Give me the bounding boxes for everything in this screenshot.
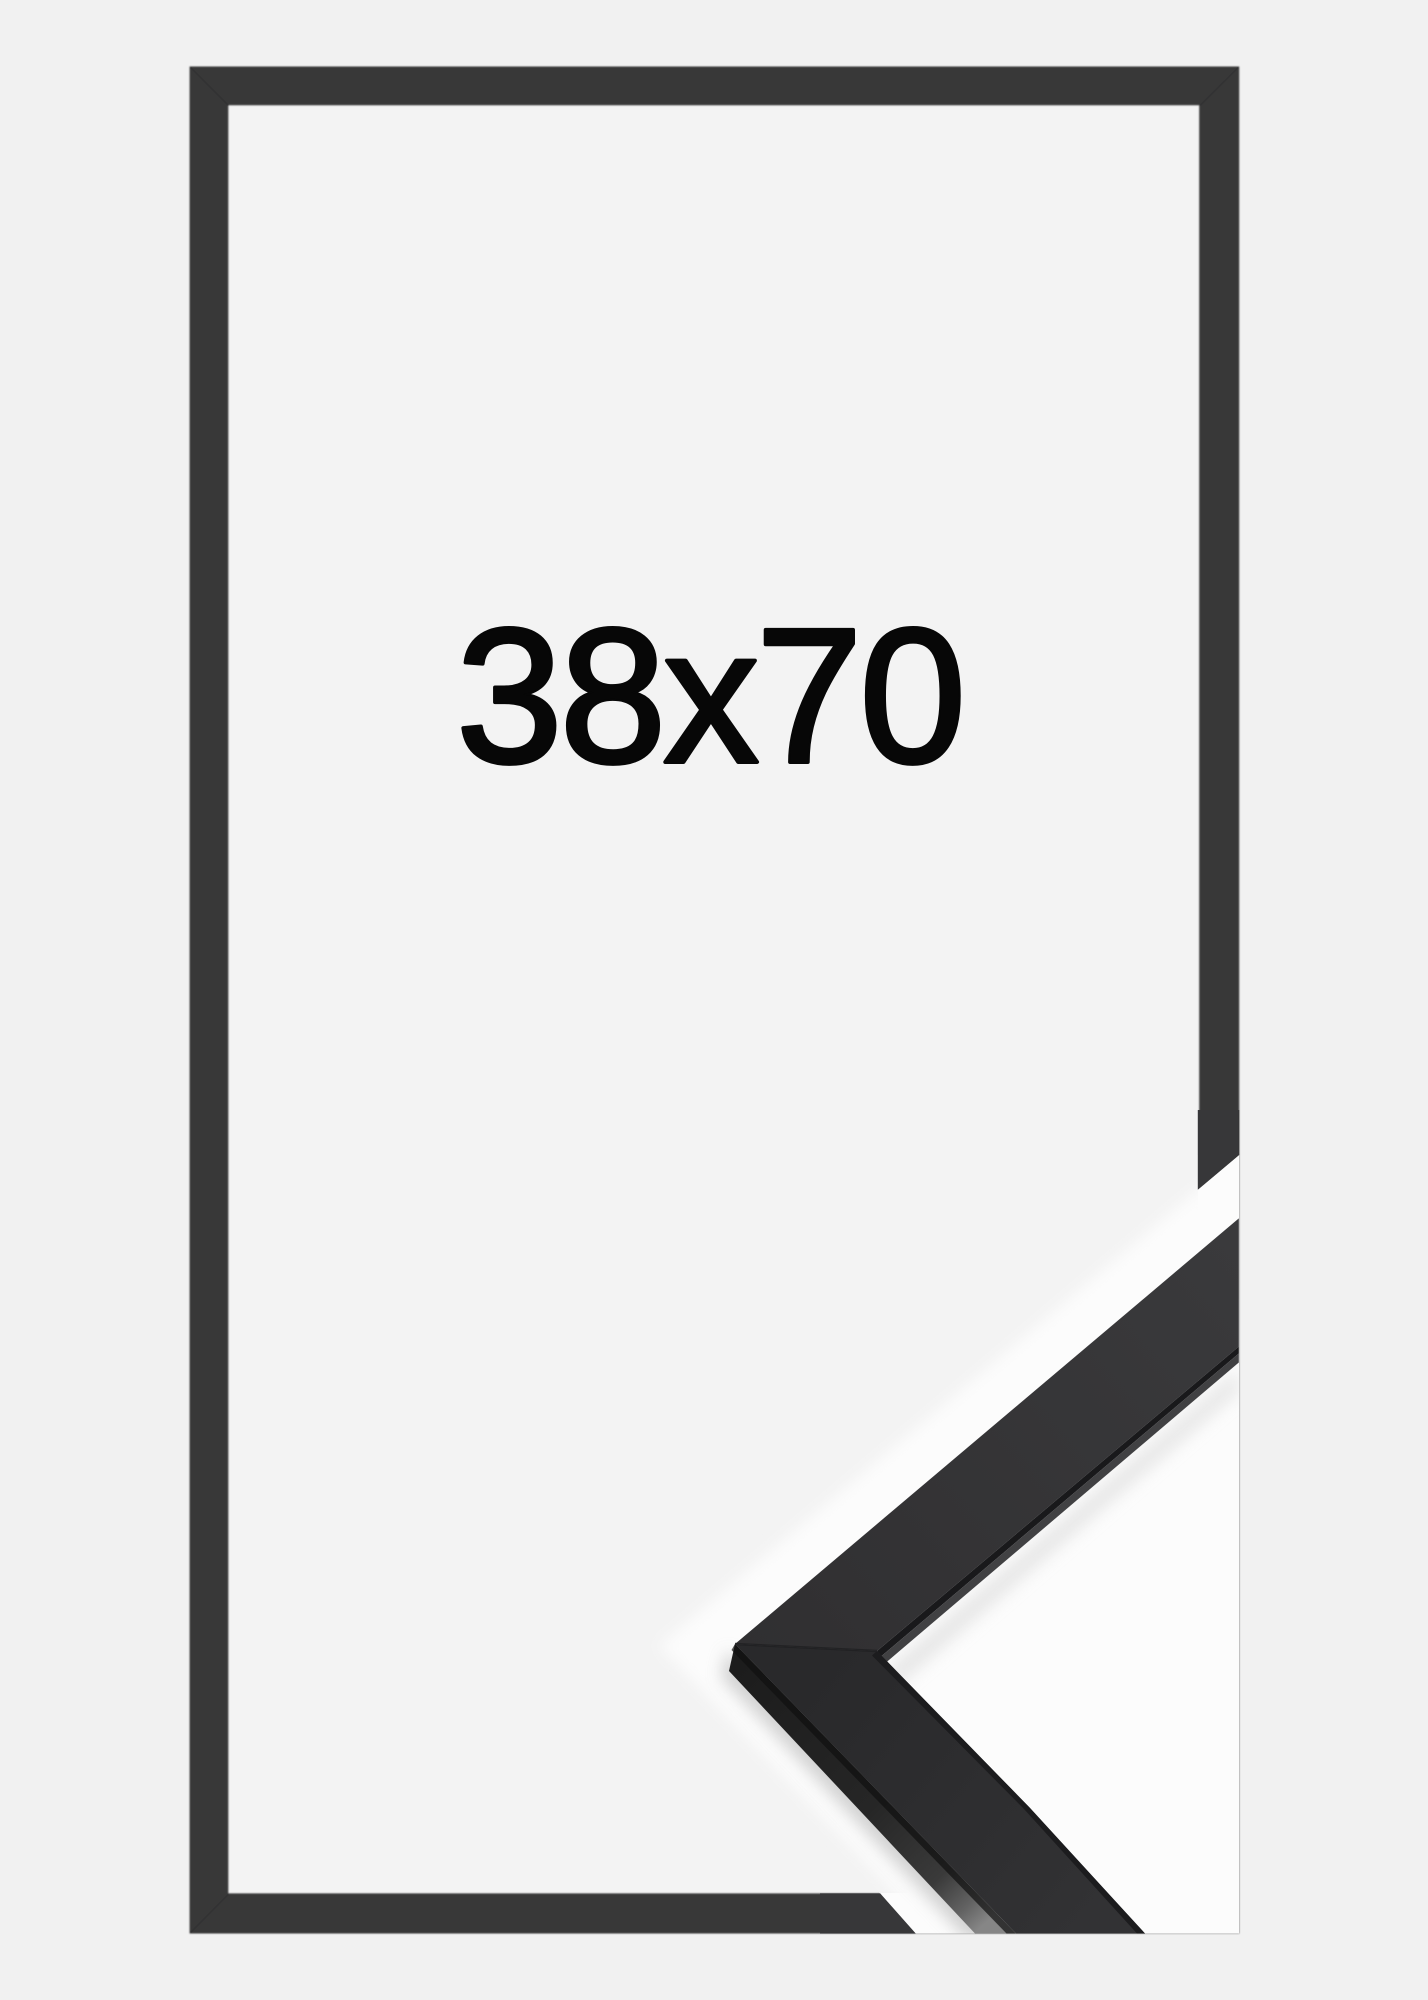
svg-text:38x70: 38x70 (456, 588, 963, 803)
